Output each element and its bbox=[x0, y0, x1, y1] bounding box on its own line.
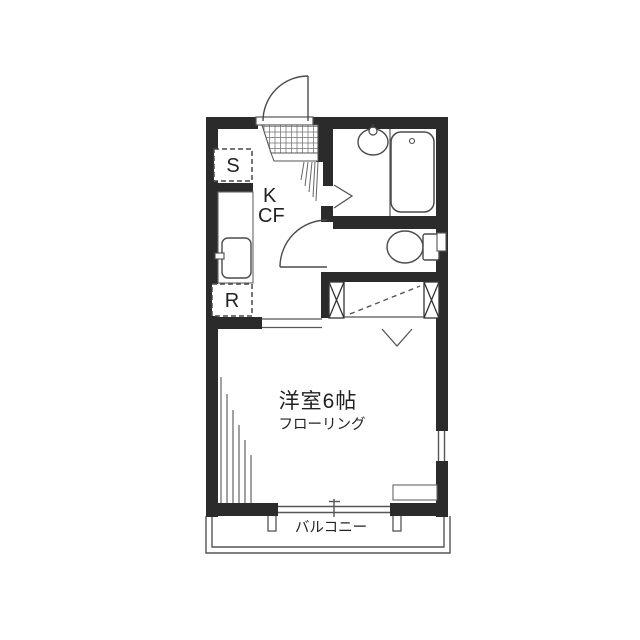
floorplan-page: S K CF R 洋室6帖 フローリング バルコニー bbox=[0, 0, 640, 640]
label-balcony: バルコニー bbox=[295, 520, 367, 536]
room-left-hatch-lines bbox=[221, 377, 251, 503]
closet-pillar-right bbox=[424, 282, 439, 318]
wall-room-top-left bbox=[206, 317, 262, 329]
wall-top-left bbox=[206, 117, 258, 129]
wall-stub-below-storage bbox=[212, 183, 253, 192]
label-kitchen: K bbox=[263, 185, 277, 207]
wall-top-right bbox=[313, 117, 448, 129]
closet-diagonal-dashed bbox=[350, 286, 420, 314]
closet bbox=[329, 282, 439, 346]
toilet-wall-fixture bbox=[437, 233, 446, 251]
label-shoe-storage: S bbox=[226, 155, 239, 177]
floorplan-drawing: S K CF R 洋室6帖 フローリング バルコニー bbox=[0, 0, 640, 640]
wall-bottom-right bbox=[390, 503, 448, 516]
bathtub-icon bbox=[391, 132, 434, 212]
entrance-door-icon bbox=[263, 76, 308, 121]
toilet-room bbox=[387, 231, 446, 263]
toilet-door-icon bbox=[280, 220, 327, 267]
entrance-door-sill bbox=[256, 117, 313, 125]
label-main-room-flooring: フローリング bbox=[279, 416, 366, 433]
wall-closet-right bbox=[439, 282, 448, 318]
wall-bottom-left bbox=[206, 503, 278, 516]
bathroom bbox=[334, 124, 434, 216]
label-refrigerator: R bbox=[225, 290, 239, 312]
entrance bbox=[256, 76, 318, 201]
genkan-tile-area bbox=[262, 125, 318, 153]
room-counter-box bbox=[393, 485, 437, 500]
label-kitchen-floor: CF bbox=[258, 205, 285, 227]
wall-closet-left bbox=[321, 282, 329, 318]
genkan-step-hatch bbox=[301, 162, 318, 201]
bathroom-folding-door-icon bbox=[334, 185, 352, 208]
wall-bath-bottom bbox=[333, 216, 448, 229]
wall-toilet-bottom bbox=[321, 272, 448, 282]
main-window-bottom bbox=[278, 499, 390, 517]
toilet-icon bbox=[387, 231, 439, 263]
side-window-right bbox=[439, 431, 445, 461]
wall-bath-left-upper bbox=[323, 162, 333, 186]
label-main-room: 洋室6帖 bbox=[279, 390, 358, 413]
closet-door-mark-icon bbox=[382, 329, 412, 346]
room-opening-threshold bbox=[262, 319, 322, 328]
closet-pillar-left bbox=[329, 282, 344, 318]
genkan-step bbox=[271, 153, 318, 161]
